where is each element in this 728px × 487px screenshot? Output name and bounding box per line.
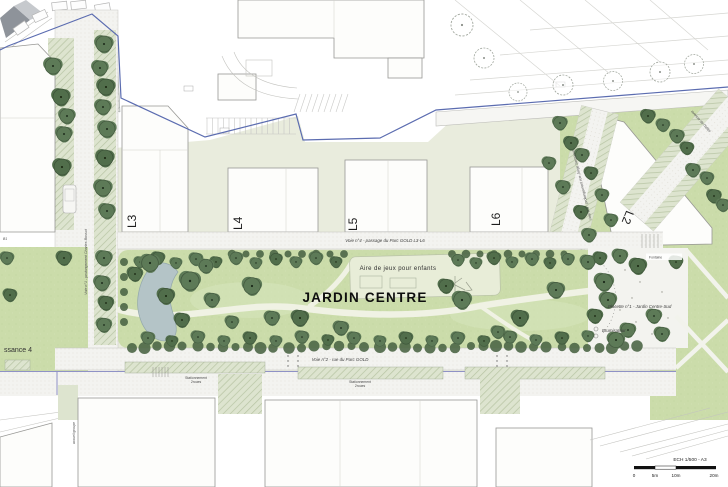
hedge-icon: [340, 250, 348, 258]
site-plan: Voie n°1 - prolongement Charles Bossut V…: [0, 0, 728, 487]
hedge-icon: [297, 344, 306, 353]
existing-tree-icon: [509, 83, 527, 101]
scale-tick-5m: 5m: [652, 473, 659, 478]
parcel-l6: [470, 167, 548, 232]
existing-tree-icon: [650, 62, 670, 82]
hedge-icon: [298, 250, 306, 258]
hedge-icon: [120, 318, 128, 326]
hedge-icon: [519, 251, 526, 258]
scale-tick-20m: 20m: [710, 473, 719, 478]
label-fontaine: Fontaine: [649, 256, 662, 260]
hedge-icon: [569, 343, 580, 354]
hedge-icon: [120, 258, 128, 266]
hedge-icon: [120, 303, 128, 311]
site-plan-svg: Voie n°1 - prolongement Charles Bossut V…: [0, 0, 728, 487]
hedge-icon: [477, 251, 484, 258]
hedge-icon: [413, 344, 422, 353]
label-parcel-l6: L6: [489, 212, 503, 226]
hedge-icon: [595, 343, 605, 353]
hedge-icon: [283, 342, 295, 354]
scale-tick-0: 0: [633, 473, 636, 478]
svg-text:2roues: 2roues: [191, 380, 202, 384]
hedge-icon: [467, 342, 475, 350]
hedge-icon: [541, 342, 552, 353]
hedge-icon: [309, 341, 320, 352]
label-parcel-l5: L5: [346, 217, 360, 231]
label-brumisateur: Brumisateur: [602, 328, 626, 333]
label-parcel-l3: L3: [125, 214, 139, 228]
hedge-icon: [178, 342, 187, 351]
label-parcel-l4: L4: [231, 216, 245, 230]
label-playground: Aire de jeux pour enfants: [360, 266, 437, 272]
hedge-icon: [388, 342, 398, 352]
hedge-icon: [120, 273, 128, 281]
hedge-icon: [515, 341, 527, 353]
scale-label: ECH 1/500 - A3: [673, 457, 707, 463]
label-voie1: Voie n°1 - prolongement Charles Bossut: [84, 228, 88, 295]
hedge-icon: [206, 343, 215, 352]
existing-tree-icon: [553, 75, 573, 95]
label-placette: Placette n°1 - Jardin Centre-Sud: [608, 304, 672, 309]
svg-text:2roues: 2roues: [355, 384, 366, 388]
label-lawn: ssance 4: [4, 347, 32, 354]
label-voie4: Voie n°4 - passage du Parc GOLD L3-L6: [345, 238, 425, 243]
scale-tick-10m: 10m: [672, 473, 681, 478]
label-b1: B1: [3, 237, 7, 241]
hedge-icon: [255, 342, 267, 354]
hedge-icon: [256, 250, 264, 258]
hedge-icon: [359, 342, 369, 352]
hedge-icon: [127, 343, 137, 353]
label-accueil: accueil groupe: [72, 422, 76, 444]
hedge-icon: [243, 251, 250, 258]
hedge-icon: [438, 344, 447, 353]
label-jardin-centre: JARDIN CENTRE: [302, 290, 427, 305]
hedge-icon: [631, 340, 643, 352]
hedge-icon: [232, 343, 240, 351]
existing-tree-icon: [604, 72, 623, 91]
existing-tree-icon: [474, 48, 494, 68]
label-voie2: Voie n°2 - rue du Parc GOLD: [312, 357, 370, 362]
hedge-icon: [583, 344, 591, 352]
hedge-icon: [120, 288, 128, 296]
label-fontaine-group: Fontaine: [646, 254, 682, 261]
hedge-icon: [152, 341, 162, 351]
hedge-icon: [334, 341, 345, 352]
hedge-icon: [490, 340, 502, 352]
existing-tree-icon: [451, 14, 473, 36]
hedge-icon: [546, 250, 555, 259]
existing-tree-icon: [685, 55, 704, 74]
hedge-icon: [285, 251, 292, 258]
